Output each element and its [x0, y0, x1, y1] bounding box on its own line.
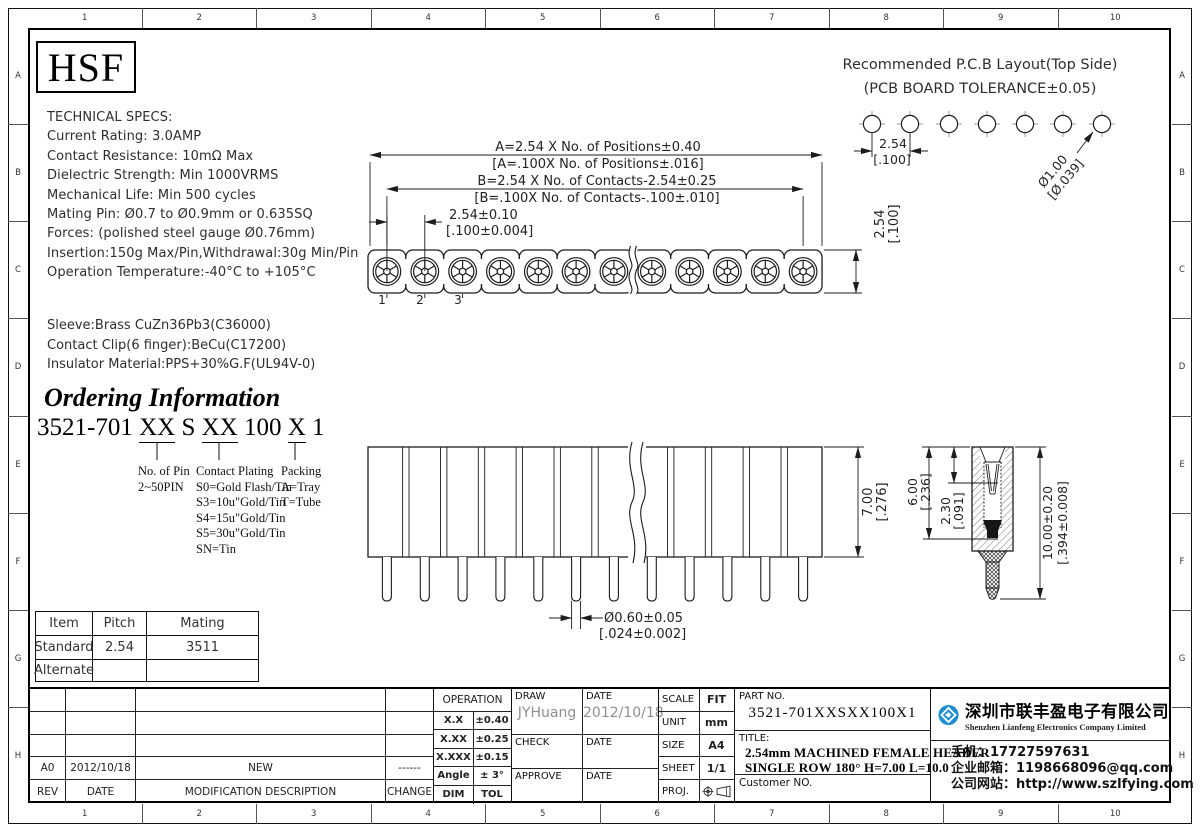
dim-pitch-in: [.100±0.004]: [446, 224, 533, 239]
customer-no-label: Customer NO.: [739, 777, 812, 789]
company-name-en: Shenzhen Lianfeng Electronics Company Li…: [965, 722, 1169, 732]
rev-change: ------: [386, 757, 433, 780]
position-number: 2: [416, 293, 424, 307]
company-contact: 手机：17727597631 企业邮箱：1198668096@qq.com 公司…: [931, 741, 1169, 793]
top-view: A=2.54 X No. of Positions±0.40 [A=.100X …: [368, 140, 902, 307]
tolerance-table: OPERATION X.X±0.40 X.XX±0.25 X.XXX±0.15 …: [433, 689, 511, 803]
position-number: 1: [378, 293, 386, 307]
dim-pin-diameter-mm: Ø0.60±0.05: [604, 611, 683, 626]
dim-pin-diameter-in: [.024±0.002]: [599, 627, 686, 642]
pcb-pitch-dim-mm: 2.54: [879, 136, 907, 151]
dim-funnel-depth: 2.30 [.091]: [938, 492, 966, 530]
svg-text:[.100]: [.100]: [887, 204, 902, 243]
pcb-layout-view: 2.54 [.100] Ø1.00 [Ø.039]: [854, 111, 1115, 202]
part-number: 3521-701XXSXX100X1: [735, 705, 930, 722]
company-logo-icon: [937, 695, 960, 735]
signature-block: DRAW JYHuang DATE 2012/10/18 CHECK DATE …: [511, 689, 658, 803]
date-label: DATE: [586, 737, 612, 748]
rev-header: MODIFICATION DESCRIPTION: [136, 780, 386, 803]
approve-label: APPROVE: [515, 771, 562, 782]
side-section-view: 6.00 [.236] 2.30 [.091] 10.00±0.20 [.394…: [905, 447, 1070, 599]
rev-header: CHANGE: [386, 780, 433, 803]
dim-pitch-mm: 2.54±0.10: [449, 208, 518, 223]
svg-text:[.236]: [.236]: [918, 473, 933, 511]
svg-text:7.00: 7.00: [861, 488, 876, 517]
dim-a-mm: A=2.54 X No. of Positions±0.40: [495, 140, 701, 155]
company-website: 公司网站：http://www.szlfying.com: [951, 777, 1169, 793]
solder-pins: [382, 557, 807, 601]
dim-a-in: [A=.100X No. of Positions±.016]: [492, 157, 704, 172]
check-label: CHECK: [515, 737, 549, 748]
svg-text:2.54: 2.54: [873, 210, 888, 239]
title-block: A0 2012/10/18 NEW ------ REV DATE MODIFI…: [30, 687, 1169, 803]
pcb-hole-dim: Ø1.00 [Ø.039]: [1033, 147, 1086, 203]
svg-text:[.276]: [.276]: [875, 482, 890, 521]
position-number: 3: [454, 293, 462, 307]
part-no-label: PART NO.: [739, 691, 785, 702]
company-brand: 深圳市联丰盈电子有限公司 Shenzhen Lianfeng Electroni…: [931, 689, 1169, 741]
dim-depth: 6.00 [.236]: [905, 473, 933, 511]
rev-description: NEW: [136, 757, 386, 780]
revision-table: A0 2012/10/18 NEW ------ REV DATE MODIFI…: [30, 689, 433, 803]
svg-text:[.091]: [.091]: [951, 492, 966, 530]
unit-value: mm: [700, 712, 733, 734]
ordering-leader-lines: [157, 443, 295, 460]
pcb-pitch-dim-in: [.100]: [873, 152, 911, 167]
company-name-cn: 深圳市联丰盈电子有限公司: [965, 698, 1169, 722]
company-phone: 手机：17727597631: [951, 745, 1169, 761]
title-label: TITLE:: [739, 733, 769, 744]
draw-label: DRAW: [515, 691, 545, 702]
company-block: 深圳市联丰盈电子有限公司 Shenzhen Lianfeng Electroni…: [930, 689, 1169, 803]
svg-text:10.00±0.20: 10.00±0.20: [1040, 486, 1055, 560]
dim-b-mm: B=2.54 X No. of Contacts-2.54±0.25: [477, 174, 716, 189]
tolerance-header: OPERATION: [434, 689, 511, 712]
meta-block: SCALEFIT UNITmm SIZEA4 SHEET1/1 PROJ.: [658, 689, 734, 803]
sheet-value: 1/1: [700, 757, 733, 779]
draw-date: 2012/10/18: [583, 705, 657, 721]
svg-text:[.394±0.008]: [.394±0.008]: [1055, 481, 1070, 565]
draw-name: JYHuang: [512, 705, 582, 721]
rev-header: DATE: [66, 780, 136, 803]
date-label: DATE: [586, 691, 612, 702]
dim-width: 2.54 [.100]: [873, 204, 902, 243]
part-block: PART NO. 3521-701XXSXX100X1 TITLE: 2.54m…: [734, 689, 930, 803]
front-view: 7.00 [.276] Ø0.60±0.05 [.024±0.002]: [368, 442, 890, 642]
drawing-sheet: 1 2 3 4 5 6 7 8 9 10 1 2 3 4 5 6 7 8 9 1…: [0, 0, 1200, 832]
dim-b-in: [B=.100X No. of Contacts-.100±.010]: [474, 191, 719, 206]
dim-overall-length: 10.00±0.20 [.394±0.008]: [1040, 481, 1070, 565]
dim-height: 7.00 [.276]: [861, 482, 890, 521]
date-label: DATE: [586, 771, 612, 782]
scale-value: FIT: [700, 689, 733, 711]
rev-date: 2012/10/18: [66, 757, 136, 780]
company-email: 企业邮箱：1198668096@qq.com: [951, 761, 1169, 777]
projection-symbol-icon: [700, 780, 733, 803]
size-value: A4: [700, 735, 733, 757]
rev-value: A0: [30, 757, 66, 780]
rev-header: REV: [30, 780, 66, 803]
